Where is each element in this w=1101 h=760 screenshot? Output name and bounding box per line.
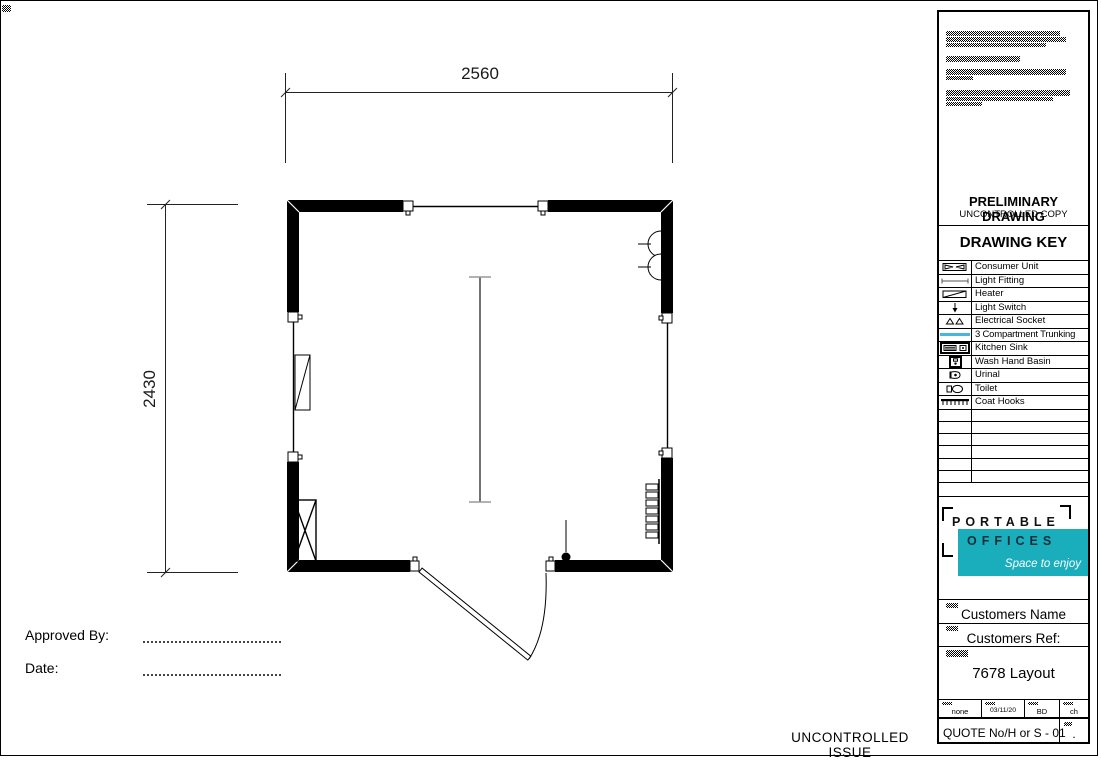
redacted-field-label [946, 650, 968, 657]
door [410, 557, 555, 660]
urinal-icon [939, 369, 972, 382]
redacted-line [946, 31, 1060, 36]
top-dimension-lines [281, 73, 677, 163]
key-row-empty [939, 445, 1088, 457]
meta-cell-checked: ch [1060, 700, 1088, 717]
redacted-field-label [1063, 702, 1073, 705]
logo-bracket-icon [1060, 505, 1071, 519]
redacted-field-label [985, 702, 995, 705]
floor-plan [0, 0, 1101, 757]
key-row: 3 Compartment Trunking [939, 328, 1088, 342]
key-row-empty [939, 433, 1088, 445]
coat-hooks-icon [939, 396, 972, 409]
logo-section: PORTABLE OFFICES Space to enjoy [939, 496, 1088, 599]
window-right [659, 313, 672, 458]
heater-symbol [295, 355, 310, 410]
customers-ref-box: Customers Ref: [939, 623, 1088, 646]
kitchen-sink-icon [939, 342, 972, 355]
key-label: Toilet [972, 383, 1088, 396]
quote-rev-cell: . [1060, 719, 1088, 743]
meta-cell-drawn: BD [1025, 700, 1060, 717]
redacted-line [946, 97, 1053, 101]
redacted-field-label [942, 702, 952, 705]
uncontrolled-copy-subtitle: UNCONTROLLED COPY [939, 209, 1088, 220]
key-label: Consumer Unit [972, 261, 1088, 274]
meta-row: none 03/11/20 BD ch [939, 699, 1088, 717]
meta-cell-date: 03/11/20 [982, 700, 1025, 717]
dimension-width-label: 2560 [438, 64, 522, 84]
uncontrolled-issue-stamp: UNCONTROLLED ISSUE [770, 730, 930, 760]
light-fitting-symbol [469, 277, 491, 502]
consumer-unit-icon [939, 261, 972, 274]
redacted-line [946, 37, 1066, 42]
door-swing-arc [529, 573, 546, 659]
key-row: Consumer Unit [939, 260, 1088, 274]
meta-drawn-value: BD [1037, 707, 1047, 716]
logo-teal-box: OFFICES Space to enjoy [958, 529, 1088, 576]
key-row: Light Fitting [939, 274, 1088, 288]
key-label: Heater [972, 288, 1088, 301]
drawing-key-title: DRAWING KEY [939, 225, 1088, 260]
key-row: Coat Hooks [939, 395, 1088, 409]
approved-by-signature-line [143, 629, 281, 643]
redacted-field-label [1064, 722, 1072, 726]
electrical-socket-symbols [638, 231, 661, 280]
key-row: Toilet [939, 382, 1088, 396]
key-label: Coat Hooks [972, 396, 1088, 409]
redacted-line [946, 69, 1066, 75]
drawing-title-box: 7678 Layout [939, 646, 1088, 699]
quote-rev-value: . [1060, 727, 1088, 741]
meta-checked-value: ch [1070, 707, 1078, 716]
customers-ref-value: Customers Ref: [939, 631, 1088, 646]
redacted-field-label [1028, 702, 1038, 705]
key-row: Light Switch [939, 301, 1088, 315]
logo-portable-text: PORTABLE [952, 515, 1060, 529]
key-row: Wash Hand Basin [939, 355, 1088, 369]
key-row: Kitchen Sink [939, 341, 1088, 355]
key-row: Electrical Socket [939, 314, 1088, 328]
redacted-line [946, 102, 982, 106]
meta-cell-scale: none [939, 700, 982, 717]
key-label: Electrical Socket [972, 315, 1088, 328]
redacted-line [946, 43, 1046, 47]
title-block-info-section: PRELIMINARY DRAWING UNCONTROLLED COPY [939, 12, 1088, 225]
key-row-empty [939, 409, 1088, 421]
dimension-height-label: 2430 [140, 347, 160, 431]
heater-icon [939, 288, 972, 301]
drawing-title-value: 7678 Layout [939, 665, 1088, 682]
customers-name-value: Customers Name [939, 607, 1088, 622]
key-label: Wash Hand Basin [972, 356, 1088, 369]
key-label: Kitchen Sink [972, 342, 1088, 355]
meta-scale-value: none [952, 707, 969, 716]
customers-name-box: Customers Name [939, 599, 1088, 623]
light-switch-icon [939, 302, 972, 315]
redacted-line [946, 56, 1020, 62]
key-label: 3 Compartment Trunking [972, 329, 1088, 342]
title-block: PRELIMINARY DRAWING UNCONTROLLED COPY DR… [937, 10, 1090, 744]
date-signature-line [143, 662, 281, 676]
wash-hand-basin-icon [939, 356, 972, 369]
quote-ref-value: QUOTE No/H or S - 01 [939, 719, 1060, 743]
logo-bracket-icon [942, 543, 953, 557]
key-label: Light Fitting [972, 275, 1088, 288]
redacted-line [946, 90, 1070, 96]
light-switch-symbol [562, 520, 571, 562]
key-label: Light Switch [972, 302, 1088, 315]
coat-hooks-symbol [646, 479, 659, 544]
key-row: Urinal [939, 368, 1088, 382]
meta-date-value: 03/11/20 [990, 707, 1016, 714]
date-label: Date: [25, 660, 58, 676]
key-row: Heater [939, 287, 1088, 301]
redacted-line [946, 76, 973, 80]
toilet-icon [939, 383, 972, 396]
key-row-empty [939, 458, 1088, 470]
logo-offices-text: OFFICES [967, 534, 1056, 548]
spacer-row [939, 482, 1088, 496]
electrical-socket-icon [939, 315, 972, 328]
key-row-empty [939, 421, 1088, 433]
logo-tagline: Space to enjoy [1005, 558, 1081, 570]
key-row-empty [939, 470, 1088, 482]
quote-row: QUOTE No/H or S - 01 . [939, 717, 1088, 743]
window-top [403, 201, 548, 215]
door-leaf [419, 568, 531, 660]
left-dimension-lines [147, 200, 238, 577]
key-label: Urinal [972, 369, 1088, 382]
trunking-icon [939, 329, 972, 342]
light-fitting-icon [939, 275, 972, 288]
drawing-key-table: Consumer Unit Light Fitting Heater Light… [939, 260, 1088, 482]
approved-by-label: Approved By: [25, 627, 109, 643]
